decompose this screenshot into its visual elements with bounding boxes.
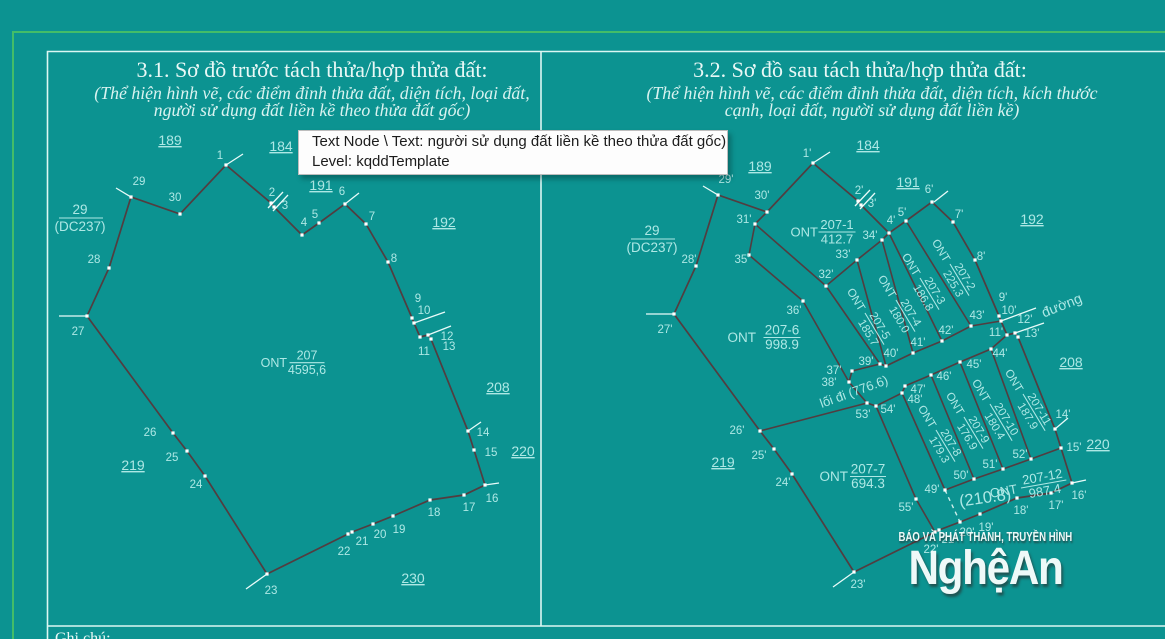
svg-text:ONT: ONT	[844, 286, 867, 313]
svg-text:30': 30'	[755, 190, 770, 202]
svg-text:43': 43'	[970, 310, 985, 322]
svg-text:4': 4'	[887, 215, 896, 227]
svg-text:207-7: 207-7	[851, 462, 886, 477]
svg-text:6: 6	[339, 186, 345, 198]
svg-text:219: 219	[711, 454, 735, 470]
svg-text:37': 37'	[827, 365, 842, 377]
svg-text:3': 3'	[868, 198, 877, 210]
svg-text:8: 8	[391, 253, 397, 265]
svg-text:35': 35'	[735, 254, 750, 266]
svg-text:20: 20	[374, 529, 387, 541]
svg-text:7: 7	[369, 211, 375, 223]
svg-text:24: 24	[190, 479, 203, 491]
svg-text:34': 34'	[863, 230, 878, 242]
svg-text:23: 23	[265, 585, 278, 597]
svg-text:50': 50'	[954, 470, 969, 482]
svg-text:38': 38'	[822, 377, 837, 389]
svg-text:51': 51'	[983, 459, 998, 471]
svg-text:21: 21	[356, 536, 369, 548]
svg-text:(DC237): (DC237)	[54, 219, 105, 234]
svg-text:7': 7'	[955, 209, 964, 221]
svg-text:48': 48'	[908, 394, 923, 406]
svg-text:45': 45'	[967, 359, 982, 371]
svg-text:17: 17	[463, 502, 476, 514]
svg-text:191: 191	[309, 177, 333, 193]
svg-text:16: 16	[486, 493, 499, 505]
svg-text:26': 26'	[730, 425, 745, 437]
svg-text:13': 13'	[1025, 328, 1040, 340]
svg-text:207: 207	[297, 349, 318, 363]
svg-text:ONT: ONT	[728, 330, 757, 345]
svg-text:33': 33'	[836, 249, 851, 261]
svg-text:đường: đường	[1039, 290, 1084, 321]
svg-text:219: 219	[121, 457, 145, 473]
svg-text:8': 8'	[977, 251, 986, 263]
svg-text:29: 29	[133, 176, 146, 188]
svg-text:1: 1	[217, 150, 223, 162]
svg-text:15': 15'	[1067, 442, 1082, 454]
svg-text:208: 208	[1059, 354, 1083, 370]
svg-text:10: 10	[418, 305, 431, 317]
svg-text:(210.8): (210.8)	[958, 485, 1012, 510]
svg-text:54': 54'	[881, 404, 896, 416]
svg-text:220: 220	[1086, 436, 1110, 452]
svg-text:14': 14'	[1056, 409, 1071, 421]
svg-text:10': 10'	[1002, 305, 1017, 317]
svg-text:13: 13	[443, 341, 456, 353]
svg-text:49': 49'	[925, 484, 940, 496]
svg-text:25': 25'	[752, 450, 767, 462]
svg-text:ONT: ONT	[929, 237, 952, 264]
svg-text:230: 230	[401, 570, 425, 586]
svg-text:184: 184	[269, 138, 293, 154]
svg-text:18: 18	[428, 507, 441, 519]
svg-text:3: 3	[282, 200, 288, 212]
svg-text:998.9: 998.9	[765, 337, 799, 352]
svg-text:40': 40'	[884, 348, 899, 360]
svg-text:184: 184	[856, 137, 880, 153]
svg-text:44': 44'	[993, 348, 1008, 360]
svg-text:41': 41'	[911, 337, 926, 349]
svg-text:2: 2	[269, 187, 275, 199]
svg-text:29: 29	[72, 202, 87, 217]
svg-text:29: 29	[644, 223, 659, 238]
svg-text:cạnh, loại đất, người sử dụng: cạnh, loại đất, người sử dụng đất liền k…	[725, 100, 1020, 121]
svg-text:28: 28	[88, 254, 101, 266]
svg-text:5': 5'	[898, 207, 907, 219]
svg-text:ONT: ONT	[899, 251, 922, 278]
svg-text:36': 36'	[787, 305, 802, 317]
svg-text:ONT: ONT	[875, 273, 898, 300]
svg-text:ONT: ONT	[915, 403, 938, 430]
svg-text:11': 11'	[989, 327, 1003, 339]
svg-text:189: 189	[748, 158, 772, 174]
svg-text:23': 23'	[851, 579, 866, 591]
svg-text:3.2. Sơ đồ sau tách thửa/hợp t: 3.2. Sơ đồ sau tách thửa/hợp thửa đất:	[693, 57, 1027, 82]
svg-text:26: 26	[144, 427, 157, 439]
svg-text:27: 27	[72, 326, 85, 338]
svg-text:18': 18'	[1014, 505, 1029, 517]
svg-text:191: 191	[896, 174, 920, 190]
svg-text:31': 31'	[737, 214, 752, 226]
svg-text:(DC237): (DC237)	[626, 240, 677, 255]
svg-text:17': 17'	[1049, 500, 1064, 512]
svg-text:9': 9'	[999, 292, 1008, 304]
svg-text:15: 15	[485, 447, 498, 459]
svg-text:694.3: 694.3	[851, 476, 885, 491]
svg-text:19: 19	[393, 524, 406, 536]
svg-text:192: 192	[432, 214, 456, 230]
svg-text:Ghi chú:: Ghi chú:	[55, 630, 111, 639]
svg-text:2': 2'	[855, 185, 864, 197]
svg-text:55': 55'	[899, 502, 914, 514]
svg-text:189: 189	[158, 132, 182, 148]
svg-text:ONT: ONT	[820, 469, 849, 484]
svg-text:6': 6'	[925, 184, 934, 196]
svg-text:24': 24'	[776, 477, 791, 489]
svg-text:ONT: ONT	[261, 356, 288, 370]
svg-text:32': 32'	[819, 269, 834, 281]
svg-text:14: 14	[477, 427, 490, 439]
svg-text:4: 4	[301, 217, 308, 229]
svg-text:ONT: ONT	[791, 225, 819, 240]
svg-text:người sử dụng đất liền kề theo: người sử dụng đất liền kề theo thửa đất …	[154, 100, 471, 121]
svg-text:25: 25	[166, 452, 179, 464]
svg-text:12': 12'	[1018, 314, 1033, 326]
svg-text:53': 53'	[856, 409, 871, 421]
svg-text:29': 29'	[719, 174, 734, 186]
svg-text:220: 220	[511, 443, 535, 459]
svg-text:1': 1'	[803, 148, 812, 160]
svg-text:9: 9	[415, 293, 421, 305]
svg-text:192: 192	[1020, 211, 1044, 227]
svg-text:207-6: 207-6	[765, 323, 800, 338]
svg-text:4595,6: 4595,6	[288, 363, 326, 377]
svg-text:42': 42'	[939, 325, 954, 337]
svg-text:39': 39'	[859, 356, 874, 368]
svg-text:207-1: 207-1	[820, 217, 853, 232]
svg-text:28': 28'	[682, 254, 697, 266]
svg-text:412.7: 412.7	[821, 232, 854, 247]
svg-text:3.1. Sơ đồ trước tách thửa/hợp: 3.1. Sơ đồ trước tách thửa/hợp thửa đất:	[136, 57, 487, 82]
svg-text:11: 11	[418, 346, 430, 358]
svg-text:46': 46'	[937, 371, 952, 383]
svg-text:208: 208	[486, 379, 510, 395]
svg-text:27': 27'	[658, 324, 673, 336]
svg-text:52': 52'	[1013, 449, 1028, 461]
svg-text:16': 16'	[1072, 490, 1087, 502]
svg-text:5: 5	[312, 209, 318, 221]
svg-text:22: 22	[338, 546, 351, 558]
svg-text:30: 30	[169, 192, 182, 204]
